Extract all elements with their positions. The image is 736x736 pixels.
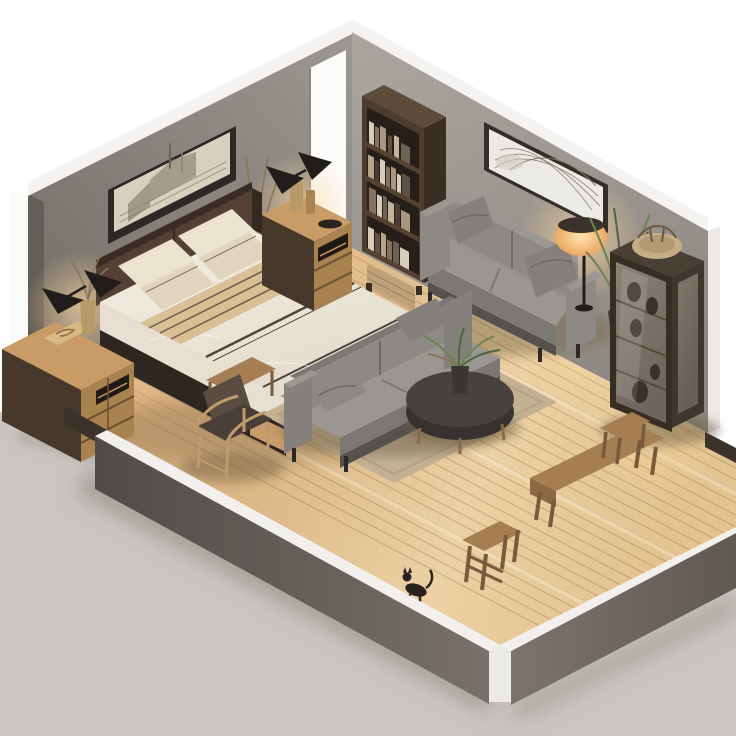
room-scene [0, 0, 736, 736]
headboard-post [252, 188, 262, 234]
lamp-shade-top [558, 217, 604, 233]
parapet-corner-cap [489, 645, 511, 702]
right-wall-end-cap [708, 226, 720, 433]
isometric-room-render [0, 0, 736, 736]
